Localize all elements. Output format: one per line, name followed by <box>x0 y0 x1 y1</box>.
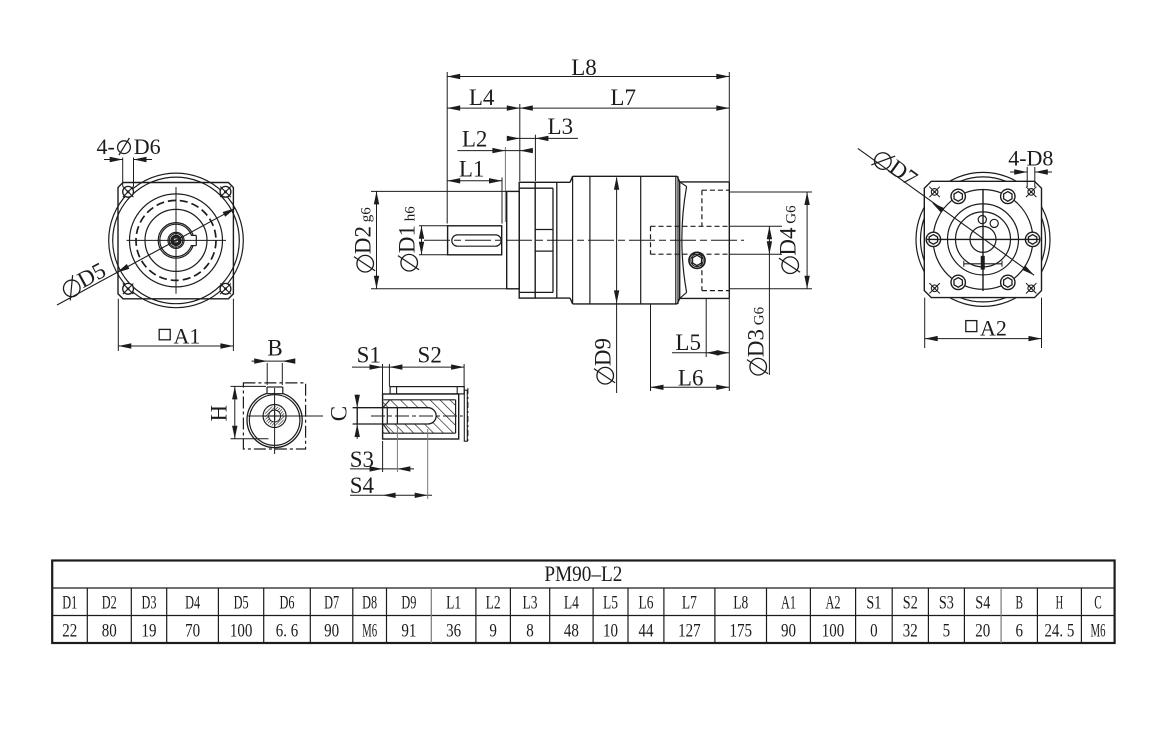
svg-text:H: H <box>207 405 232 422</box>
svg-text:S1: S1 <box>357 343 381 368</box>
svg-text:L2: L2 <box>462 127 488 152</box>
svg-text:D1 h6: D1 h6 <box>395 206 420 253</box>
svg-text:D2 g6: D2 g6 <box>351 207 376 254</box>
svg-text:100: 100 <box>230 621 253 642</box>
svg-text:D3 G6: D3 G6 <box>744 306 769 357</box>
svg-text:6: 6 <box>1015 621 1023 642</box>
svg-text:S3: S3 <box>939 593 954 614</box>
svg-text:175: 175 <box>729 621 752 642</box>
svg-text:B: B <box>1015 593 1023 614</box>
svg-text:A1: A1 <box>174 324 201 349</box>
svg-text:S3: S3 <box>350 447 374 472</box>
svg-text:36: 36 <box>446 621 461 642</box>
svg-text:L5: L5 <box>603 593 618 614</box>
svg-text:4-D8: 4-D8 <box>1008 145 1053 170</box>
svg-text:L8: L8 <box>571 55 597 80</box>
svg-text:L6: L6 <box>678 366 704 391</box>
svg-text:B: B <box>267 336 282 361</box>
svg-text:S4: S4 <box>975 593 990 614</box>
svg-text:L3: L3 <box>523 593 538 614</box>
svg-text:48: 48 <box>564 621 579 642</box>
svg-text:D3: D3 <box>142 593 157 614</box>
svg-text:127: 127 <box>678 621 701 642</box>
svg-text:19: 19 <box>142 621 157 642</box>
svg-text:9: 9 <box>489 621 497 642</box>
svg-text:80: 80 <box>102 621 117 642</box>
svg-text:H: H <box>1056 593 1064 614</box>
svg-text:PM90–L2: PM90–L2 <box>544 561 622 586</box>
svg-text:L1: L1 <box>459 157 485 182</box>
svg-text:D4: D4 <box>185 593 200 614</box>
svg-text:C: C <box>1094 593 1102 614</box>
svg-text:D9: D9 <box>591 338 616 366</box>
svg-text:90: 90 <box>324 621 339 642</box>
svg-text:S2: S2 <box>903 593 918 614</box>
svg-text:D2: D2 <box>102 593 117 614</box>
svg-text:D6: D6 <box>134 134 161 159</box>
svg-text:100: 100 <box>822 621 845 642</box>
svg-text:A2: A2 <box>980 315 1007 340</box>
svg-text:D5: D5 <box>234 593 249 614</box>
svg-text:10: 10 <box>603 621 618 642</box>
svg-text:S1: S1 <box>866 593 881 614</box>
svg-text:L6: L6 <box>639 593 654 614</box>
svg-text:L3: L3 <box>548 114 574 139</box>
svg-text:44: 44 <box>639 621 654 642</box>
svg-text:D5: D5 <box>73 257 110 292</box>
svg-text:D9: D9 <box>401 593 416 614</box>
svg-text:L1: L1 <box>446 593 461 614</box>
svg-text:4-: 4- <box>97 134 115 159</box>
svg-text:A1: A1 <box>781 593 796 614</box>
svg-text:24. 5: 24. 5 <box>1044 621 1074 642</box>
svg-text:20: 20 <box>975 621 990 642</box>
svg-text:M6: M6 <box>362 621 377 642</box>
svg-text:91: 91 <box>401 621 416 642</box>
svg-text:D4 G6: D4 G6 <box>776 205 801 256</box>
svg-text:L5: L5 <box>675 330 701 355</box>
svg-text:22: 22 <box>62 621 77 642</box>
svg-text:L2: L2 <box>486 593 501 614</box>
svg-text:5: 5 <box>943 621 951 642</box>
svg-text:S2: S2 <box>418 343 442 368</box>
svg-text:C: C <box>326 406 351 421</box>
svg-text:D6: D6 <box>280 593 295 614</box>
svg-text:L4: L4 <box>469 85 495 110</box>
svg-text:32: 32 <box>903 621 918 642</box>
svg-text:70: 70 <box>185 621 200 642</box>
svg-text:M6: M6 <box>1091 621 1106 642</box>
svg-text:D7: D7 <box>324 593 339 614</box>
svg-text:A2: A2 <box>826 593 841 614</box>
svg-text:L7: L7 <box>682 593 697 614</box>
svg-text:D7: D7 <box>885 155 922 192</box>
svg-text:6. 6: 6. 6 <box>276 621 298 642</box>
svg-text:S4: S4 <box>350 473 375 498</box>
svg-text:L8: L8 <box>733 593 748 614</box>
svg-text:L4: L4 <box>564 593 579 614</box>
svg-text:0: 0 <box>870 621 878 642</box>
svg-text:D8: D8 <box>362 593 377 614</box>
svg-text:8: 8 <box>526 621 534 642</box>
svg-text:90: 90 <box>781 621 796 642</box>
svg-text:D1: D1 <box>62 593 77 614</box>
svg-text:L7: L7 <box>610 85 636 110</box>
